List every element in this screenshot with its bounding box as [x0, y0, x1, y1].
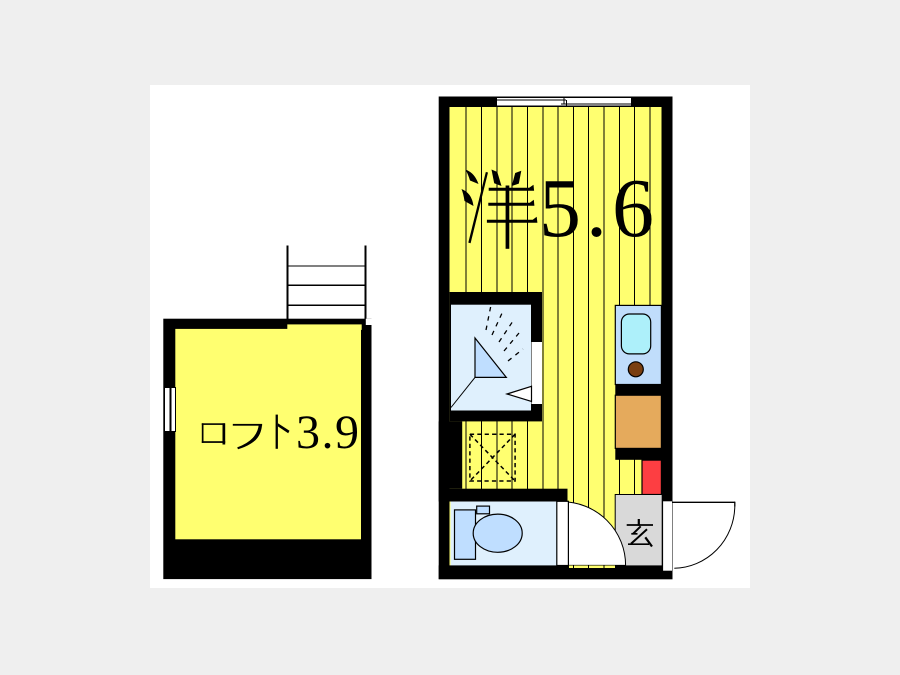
- svg-text:3.9: 3.9: [296, 406, 361, 459]
- svg-text:5.6: 5.6: [539, 162, 659, 255]
